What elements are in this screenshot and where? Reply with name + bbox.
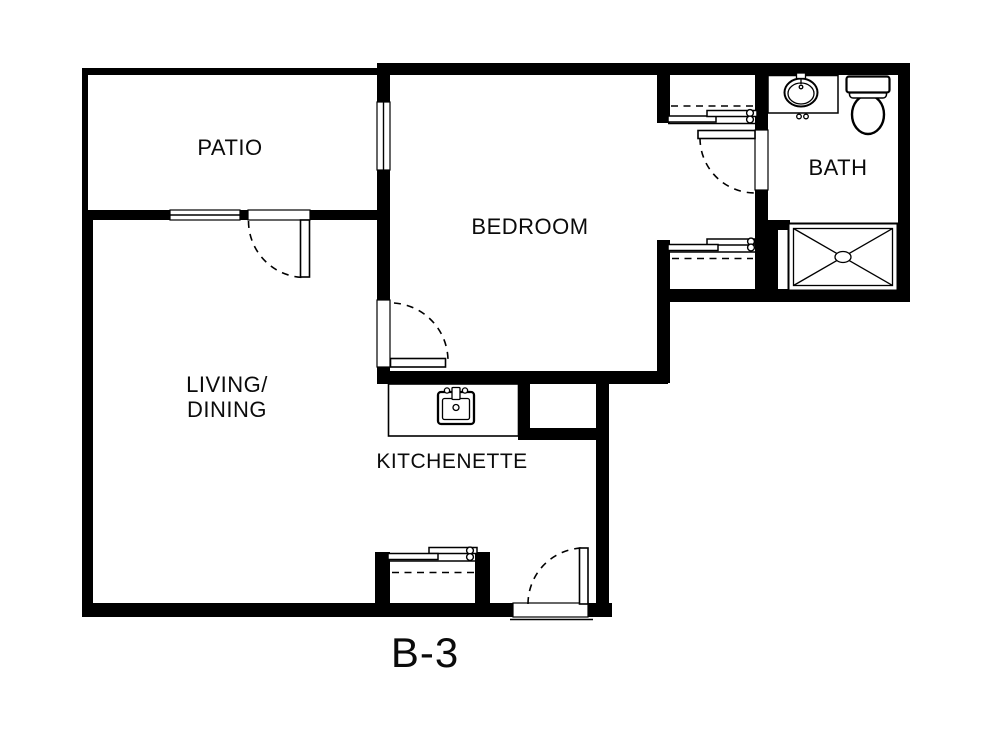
wall-alcove-left [518, 373, 530, 436]
wall-bedroom-left-mid [377, 170, 390, 301]
wall-entry-closet-right [475, 552, 490, 607]
door-swing-arc [394, 303, 448, 361]
toilet [847, 77, 890, 135]
bedroom-closet-north [668, 106, 757, 124]
door-header [513, 603, 588, 617]
bedroom-window [377, 102, 390, 170]
wall-patio-top [82, 68, 378, 75]
bedroom-label: BEDROOM [471, 214, 588, 239]
patio-window [170, 210, 240, 220]
patio-door [248, 210, 310, 278]
vanity-handle [797, 114, 802, 119]
wall-living-left [82, 210, 93, 617]
door-knob [747, 110, 754, 117]
floor-plan-page: PATIO BEDROOM BATH LIVING/ DINING KITCHE… [0, 0, 999, 731]
sink-drain [453, 405, 459, 411]
bath-label: BATH [808, 155, 867, 180]
patio-label: PATIO [197, 135, 262, 160]
wall-bedroom-right-lower [657, 240, 670, 383]
entry-door [510, 548, 593, 620]
door-knob [467, 554, 474, 561]
vanity-handle [804, 114, 809, 119]
door-header [377, 300, 390, 367]
toilet-bowl [852, 95, 884, 134]
kitchenette-label: KITCHENETTE [376, 450, 527, 473]
unit-label: B-3 [391, 629, 459, 676]
wall-patio-bottom-c [310, 210, 377, 220]
vanity-sink [768, 73, 838, 119]
door-header [248, 210, 310, 220]
door-swing-arc [249, 221, 306, 278]
wall-patio-bottom-a [82, 210, 170, 220]
door-swing-arc [700, 138, 755, 193]
wall-bath-west-upper [755, 63, 768, 130]
wall-right [898, 63, 910, 302]
wall-patio-left [82, 68, 88, 220]
kitchen-sink [438, 388, 474, 425]
door-knob [747, 116, 754, 123]
door-header [755, 130, 768, 190]
sliding-door-panel-back [668, 245, 718, 251]
living-dining-label-line1: LIVING/ [186, 372, 268, 397]
door-leaf [301, 220, 310, 277]
faucet [797, 73, 806, 79]
faucet-handle [462, 388, 467, 393]
wall-bottom [82, 603, 513, 617]
wall-top-main [377, 63, 910, 75]
door-leaf [580, 548, 589, 604]
faucet-handle [444, 388, 449, 393]
door-leaf [698, 131, 755, 139]
faucet [452, 388, 460, 400]
bedroom-door [377, 300, 448, 367]
wall-bedroom-right-upper [657, 63, 670, 123]
door-knob [748, 244, 755, 251]
wall-bath-west-stub [755, 220, 790, 230]
entry-closet [388, 547, 477, 572]
wall-alcove-bottom [518, 428, 607, 440]
bedroom-closet-south [668, 238, 755, 258]
sliding-door-panel-front [388, 554, 438, 560]
door-knob [467, 547, 474, 554]
shower [789, 224, 898, 291]
wall-patio-bottom-b [240, 210, 248, 220]
bath-door [698, 130, 768, 193]
living-dining-label-line2: DINING [187, 397, 267, 422]
floor-plan: PATIO BEDROOM BATH LIVING/ DINING KITCHE… [0, 0, 999, 731]
wall-bedroom-left-upper [377, 63, 390, 102]
shower-drain [835, 252, 851, 263]
door-swing-arc [528, 548, 584, 604]
wall-lower-right [596, 373, 609, 617]
door-leaf [391, 359, 446, 368]
toilet-tank [847, 77, 890, 93]
